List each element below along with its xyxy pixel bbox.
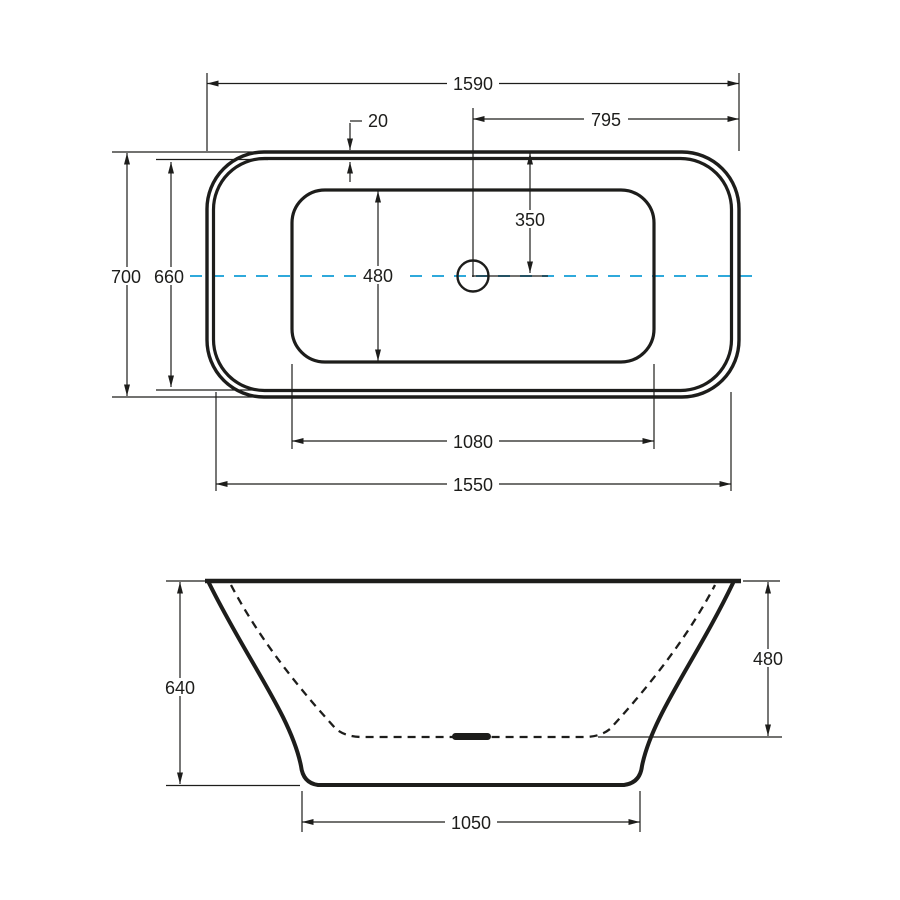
- dim-rim-offset: 20: [350, 111, 394, 182]
- dim-label-basin-length: 1080: [453, 432, 493, 452]
- dim-overall-width: 700: [106, 153, 146, 396]
- dim-label-inner-depth: 480: [753, 649, 783, 669]
- dim-rim-inner-width: 660: [149, 162, 189, 387]
- dim-label-overall-height: 640: [165, 678, 195, 698]
- dim-basin-length: 1080: [292, 432, 654, 452]
- waste-outlet-bar: [452, 733, 491, 740]
- technical-drawing-canvas: 1590 20 795 350 480: [0, 0, 900, 900]
- dim-label-overall-length: 1590: [453, 74, 493, 94]
- dim-overall-height: 640: [159, 582, 201, 784]
- dim-label-rim-inner-width: 660: [154, 267, 184, 287]
- dim-label-base-length: 1050: [451, 813, 491, 833]
- dim-overall-length: 1590: [207, 74, 739, 94]
- top-plan-view: 1590 20 795 350 480: [106, 73, 757, 495]
- dim-label-rim-inner-length: 1550: [453, 475, 493, 495]
- dim-label-overall-width: 700: [111, 267, 141, 287]
- dim-top-edge-to-center: 350: [508, 153, 552, 273]
- tub-outer-profile: [209, 583, 733, 785]
- dim-base-length: 1050: [302, 813, 640, 833]
- dim-label-top-edge-to-center: 350: [515, 210, 545, 230]
- front-elevation-view: 640 480 1050: [159, 581, 790, 833]
- dim-label-basin-width: 480: [363, 266, 393, 286]
- dim-center-to-right-end: 795: [473, 110, 739, 130]
- dim-label-center-to-right-end: 795: [591, 110, 621, 130]
- dim-inner-depth: 480: [746, 582, 790, 736]
- bathtub-drawing: 1590 20 795 350 480: [0, 0, 900, 900]
- dim-rim-inner-length: 1550: [216, 475, 731, 495]
- dim-label-rim-offset: 20: [368, 111, 388, 131]
- tub-inner-profile-dashed: [231, 585, 715, 737]
- dim-basin-width: 480: [356, 191, 400, 361]
